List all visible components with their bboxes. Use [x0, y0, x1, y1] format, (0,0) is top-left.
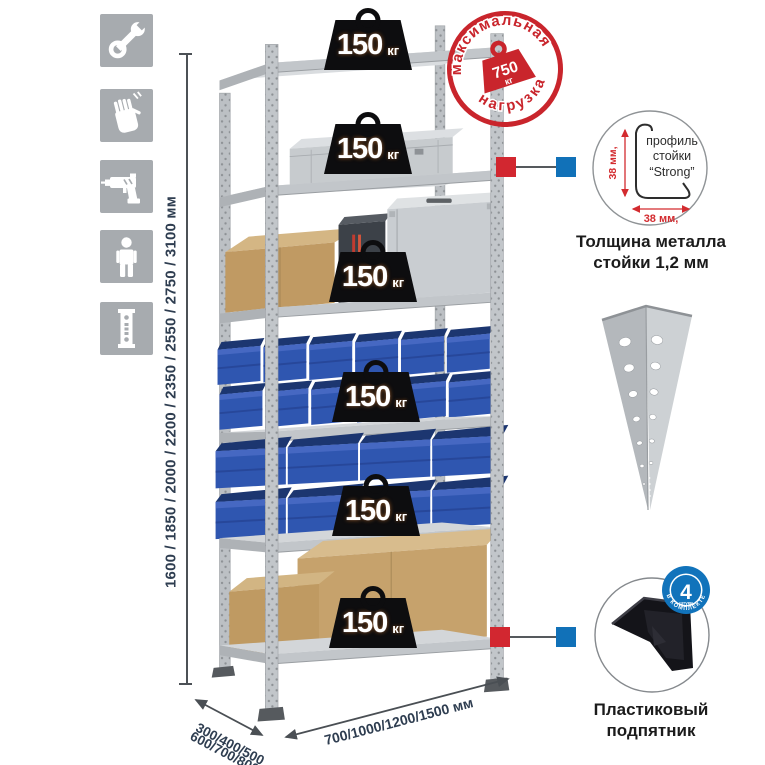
person-icon [100, 230, 153, 283]
weight-ring-icon [356, 112, 381, 137]
bottom-connector-red-marker [490, 627, 510, 647]
weight-ring-icon [364, 474, 389, 499]
load-value: 150 [342, 261, 387, 294]
load-value: 150 [342, 607, 387, 640]
profile-label-line1: профиль [646, 134, 698, 148]
load-value: 150 [345, 495, 390, 528]
bottom-connector-line [508, 636, 558, 638]
load-unit: кг [395, 395, 407, 410]
count-badge: 4 штуки В КОМПЛЕКТЕ [662, 566, 710, 614]
shelf-load-badge-2: 150кг [324, 124, 412, 174]
post-profile-icon [100, 302, 153, 355]
profile-dim-horizontal: 38 мм, [644, 213, 679, 225]
top-connector-blue-marker [556, 157, 576, 177]
bottom-connector-blue-marker [556, 627, 576, 647]
load-unit: кг [392, 621, 404, 636]
load-value: 150 [345, 381, 390, 414]
profile-dim-vertical: 38 мм, [607, 146, 619, 179]
shelf-load-badge-1: 150кг [324, 20, 412, 70]
wrench-icon [100, 14, 153, 67]
height-dimension-line [186, 54, 188, 684]
load-unit: кг [387, 43, 399, 58]
load-unit: кг [395, 509, 407, 524]
profile-caption-line2: стойки 1,2 мм [565, 252, 737, 273]
profile-caption: Толщина металла стойки 1,2 мм [565, 231, 737, 273]
shelf-load-badge-5: 150кг [332, 486, 420, 536]
weight-ring-icon [356, 8, 381, 33]
plastic-foot-detail: 4 штуки В КОМПЛЕКТЕ [588, 560, 724, 696]
profile-label-line2: стойки [653, 149, 691, 163]
shelf-load-badge-3: 150кг [329, 252, 417, 302]
weight-ring-icon [361, 586, 386, 611]
shelf-load-badge-4: 150кг [332, 372, 420, 422]
profile-label-line3: “Strong” [649, 165, 694, 179]
foot-caption: Пластиковый подпятник [565, 699, 737, 741]
foot-count-label: штуки [679, 601, 693, 606]
load-unit: кг [392, 275, 404, 290]
height-dimensions-label: 1600 / 1850 / 2000 / 2200 / 2350 / 2550 … [163, 196, 180, 588]
weight-ring-icon [364, 360, 389, 385]
load-unit: кг [387, 147, 399, 162]
height-dimension-tick-top [179, 53, 192, 55]
drill-icon [100, 160, 153, 213]
top-connector-line [512, 166, 558, 168]
load-value: 150 [337, 133, 382, 166]
angle-post-image [594, 298, 702, 530]
top-connector-red-marker [496, 157, 516, 177]
load-value: 150 [337, 29, 382, 62]
post-profile-detail: 38 мм, 38 мм, профиль стойки “Strong” [588, 106, 714, 232]
foot-caption-line1: Пластиковый [565, 699, 737, 720]
foot-caption-line2: подпятник [565, 720, 737, 741]
shelving-infographic: 1600 / 1850 / 2000 / 2200 / 2350 / 2550 … [0, 0, 765, 765]
gloves-icon [100, 89, 153, 142]
profile-caption-line1: Толщина металла [565, 231, 737, 252]
max-load-stamp: максимальная нагрузка 750 кг [440, 4, 570, 134]
shelf-load-badge-6: 150кг [329, 598, 417, 648]
weight-ring-icon [361, 240, 386, 265]
footprint-dimensions: 300/400/500 600/700/800 мм 700/1000/1200… [160, 655, 530, 765]
